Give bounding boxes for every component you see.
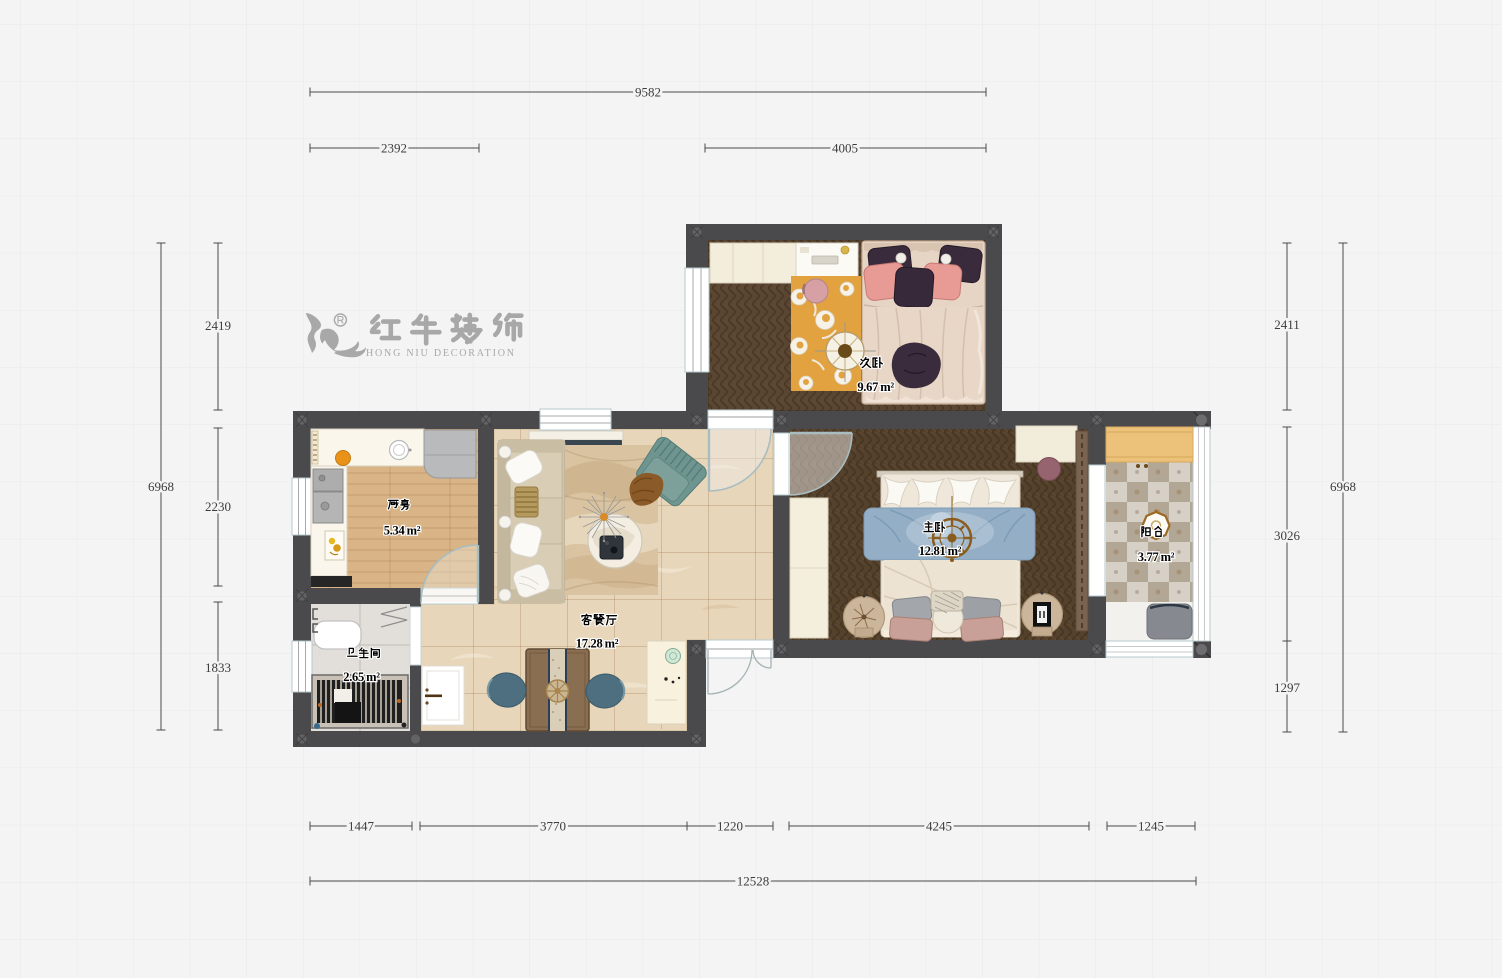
svg-text:4245: 4245 <box>926 819 952 834</box>
svg-text:1245: 1245 <box>1138 819 1164 834</box>
svg-text:9582: 9582 <box>635 85 661 100</box>
svg-text:3026: 3026 <box>1274 528 1301 543</box>
svg-text:17.28 m²: 17.28 m² <box>576 637 619 651</box>
svg-text:6968: 6968 <box>1330 479 1356 494</box>
svg-text:5.34 m²: 5.34 m² <box>384 524 421 538</box>
svg-text:4005: 4005 <box>832 141 858 156</box>
svg-text:1220: 1220 <box>717 819 743 834</box>
svg-text:12.81 m²: 12.81 m² <box>919 544 962 558</box>
svg-text:HONG NIU DECORATION: HONG NIU DECORATION <box>366 348 516 359</box>
svg-text:3770: 3770 <box>540 819 566 834</box>
svg-text:3.77 m²: 3.77 m² <box>1138 550 1175 564</box>
svg-text:2.65 m²: 2.65 m² <box>343 670 380 684</box>
svg-text:2230: 2230 <box>205 499 231 514</box>
svg-text:1297: 1297 <box>1274 680 1301 695</box>
svg-text:9.67 m²: 9.67 m² <box>857 380 894 394</box>
svg-text:2419: 2419 <box>205 318 231 333</box>
svg-text:12528: 12528 <box>737 874 770 889</box>
svg-text:1833: 1833 <box>205 660 231 675</box>
svg-text:2392: 2392 <box>381 141 407 156</box>
svg-text:6968: 6968 <box>148 479 174 494</box>
svg-text:2411: 2411 <box>1274 317 1300 332</box>
svg-text:1447: 1447 <box>348 819 375 834</box>
